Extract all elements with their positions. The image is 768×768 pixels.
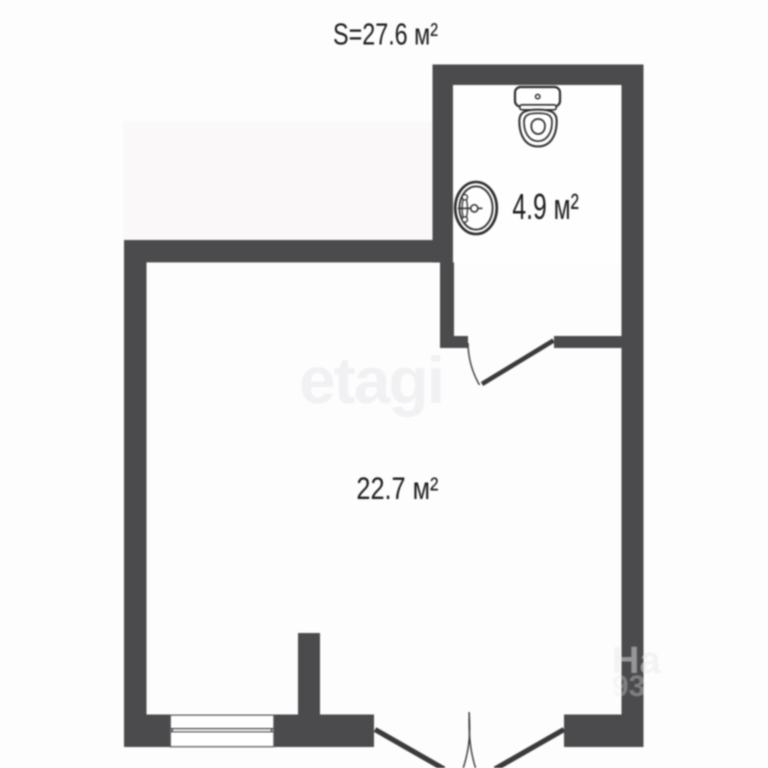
svg-text:22.7 м²: 22.7 м²	[356, 470, 438, 506]
svg-text:4.9 м²: 4.9 м²	[512, 186, 579, 227]
svg-text:93: 93	[612, 670, 645, 703]
svg-text:S=27.6 м²: S=27.6 м²	[333, 17, 438, 52]
svg-text:etagi: etagi	[299, 343, 443, 417]
